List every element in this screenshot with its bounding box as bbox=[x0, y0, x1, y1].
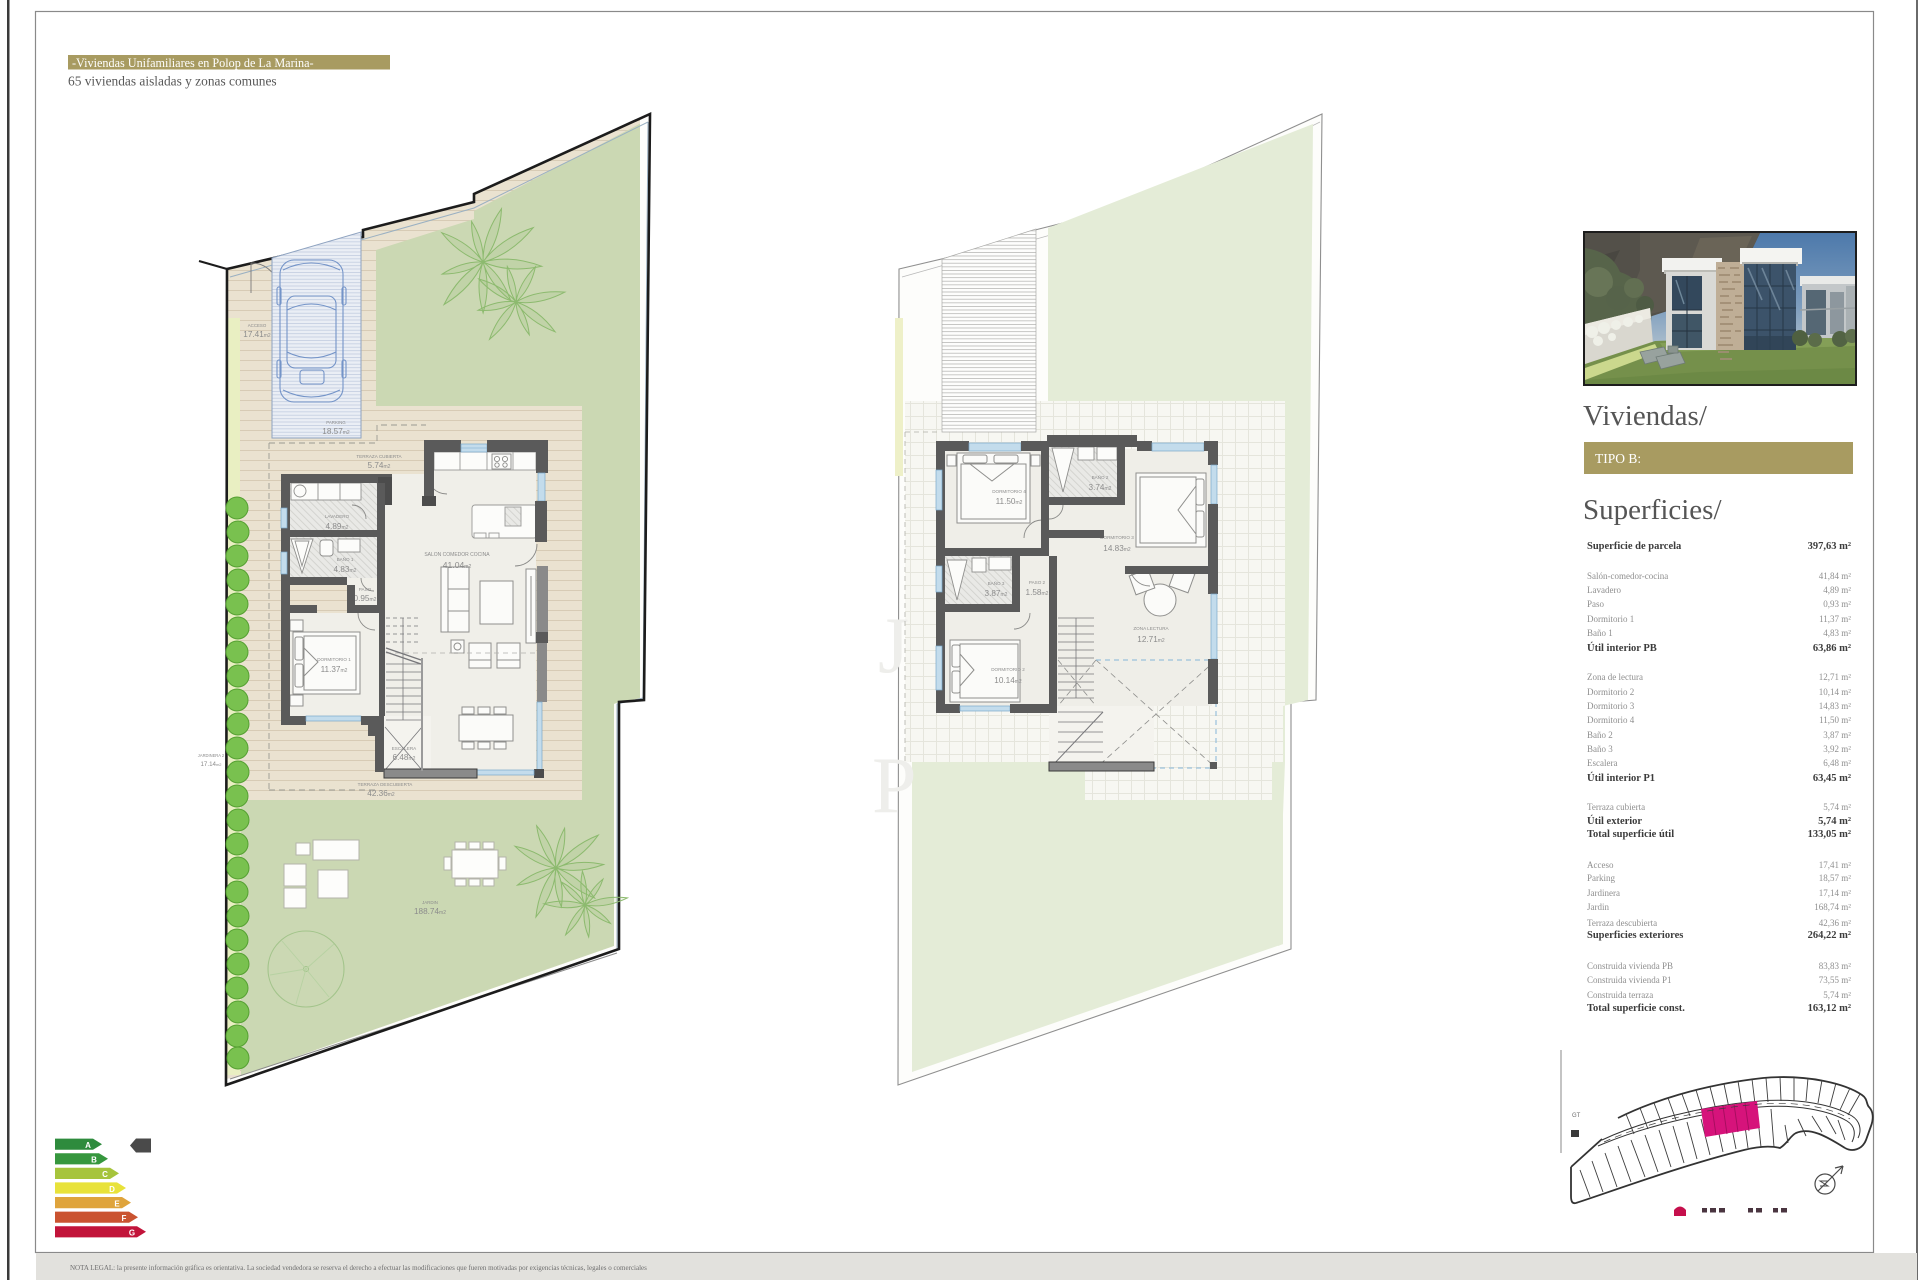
svg-text:Baño 2: Baño 2 bbox=[1587, 730, 1613, 740]
svg-text:Útil interior P1: Útil interior P1 bbox=[1587, 772, 1655, 784]
svg-text:Dormitorio 3: Dormitorio 3 bbox=[1587, 701, 1635, 711]
svg-text:41,84 m²: 41,84 m² bbox=[1819, 571, 1852, 581]
svg-text:Jardin: Jardin bbox=[1587, 902, 1609, 912]
svg-text:J: J bbox=[878, 602, 909, 690]
svg-text:PASO 2: PASO 2 bbox=[1029, 580, 1046, 585]
svg-text:Zona de lectura: Zona de lectura bbox=[1587, 672, 1643, 682]
svg-text:12,71 m²: 12,71 m² bbox=[1819, 672, 1852, 682]
svg-text:73,55 m²: 73,55 m² bbox=[1819, 975, 1852, 985]
svg-text:Superficies exteriores: Superficies exteriores bbox=[1587, 930, 1683, 941]
svg-text:17,14 m²: 17,14 m² bbox=[1819, 888, 1852, 898]
svg-text:Total superficie útil: Total superficie útil bbox=[1587, 829, 1674, 840]
svg-text:BAÑO 3: BAÑO 3 bbox=[988, 580, 1005, 586]
svg-text:11,37 m²: 11,37 m² bbox=[1819, 614, 1851, 624]
svg-text:Construida vivienda P1: Construida vivienda P1 bbox=[1587, 975, 1672, 985]
svg-text:83,83 m²: 83,83 m² bbox=[1819, 961, 1852, 971]
svg-text:63,86 m²: 63,86 m² bbox=[1813, 643, 1851, 654]
svg-text:4,89 m²: 4,89 m² bbox=[1823, 585, 1851, 595]
svg-text:3,92 m²: 3,92 m² bbox=[1823, 744, 1851, 754]
svg-text:5,74 m²: 5,74 m² bbox=[1818, 816, 1851, 827]
svg-text:264,22 m²: 264,22 m² bbox=[1808, 930, 1851, 941]
svg-text:C: C bbox=[102, 1170, 108, 1179]
svg-text:Dormitorio 2: Dormitorio 2 bbox=[1587, 687, 1634, 697]
svg-text:DORMITORIO 3: DORMITORIO 3 bbox=[1100, 535, 1134, 540]
svg-text:Dormitorio 1: Dormitorio 1 bbox=[1587, 614, 1634, 624]
svg-text:Total superficie const.: Total superficie const. bbox=[1587, 1003, 1685, 1014]
svg-text:DORMITORIO 2: DORMITORIO 2 bbox=[991, 667, 1025, 672]
svg-text:18,57 m²: 18,57 m² bbox=[1819, 873, 1852, 883]
svg-text:Jardinera: Jardinera bbox=[1587, 888, 1620, 898]
svg-text:Salón-comedor-cocina: Salón-comedor-cocina bbox=[1587, 571, 1668, 581]
svg-text:63,45 m²: 63,45 m² bbox=[1813, 773, 1851, 784]
svg-text:JARDINERA 2: JARDINERA 2 bbox=[198, 753, 225, 758]
svg-text:GT: GT bbox=[1572, 1113, 1581, 1119]
svg-text:10,14 m²: 10,14 m² bbox=[1819, 687, 1852, 697]
svg-text:JARDIN: JARDIN bbox=[422, 900, 438, 905]
svg-text:LAVADERO: LAVADERO bbox=[325, 514, 350, 519]
svg-text:G: G bbox=[129, 1229, 135, 1238]
svg-text:3,87 m²: 3,87 m² bbox=[1823, 730, 1851, 740]
svg-text:A: A bbox=[85, 1141, 91, 1150]
svg-text:P: P bbox=[872, 742, 917, 830]
svg-text:Escalera: Escalera bbox=[1587, 758, 1617, 768]
svg-text:14,83 m²: 14,83 m² bbox=[1819, 701, 1852, 711]
svg-text:SALON COMEDOR COCINA: SALON COMEDOR COCINA bbox=[424, 552, 490, 558]
svg-text:4,83 m²: 4,83 m² bbox=[1823, 628, 1851, 638]
svg-text:6,48 m²: 6,48 m² bbox=[1823, 758, 1851, 768]
svg-text:Terraza descubierta: Terraza descubierta bbox=[1587, 918, 1657, 928]
svg-text:0,93 m²: 0,93 m² bbox=[1823, 599, 1851, 609]
svg-text:TERRAZA DESCUBIERTA: TERRAZA DESCUBIERTA bbox=[358, 782, 414, 787]
svg-text:65 viviendas aisladas y zonas: 65 viviendas aisladas y zonas comunes bbox=[68, 74, 277, 89]
svg-text:BAÑO 2: BAÑO 2 bbox=[1092, 474, 1109, 480]
svg-text:Útil interior PB: Útil interior PB bbox=[1587, 642, 1657, 654]
svg-text:Baño 1: Baño 1 bbox=[1587, 628, 1613, 638]
svg-text:PARKING: PARKING bbox=[326, 420, 346, 425]
svg-text:Superficies/: Superficies/ bbox=[1583, 494, 1722, 526]
svg-text:11,50 m²: 11,50 m² bbox=[1819, 715, 1851, 725]
svg-text:F: F bbox=[122, 1214, 127, 1223]
svg-text:ACCESO: ACCESO bbox=[248, 323, 267, 328]
svg-text:D: D bbox=[109, 1185, 115, 1194]
svg-text:133,05 m²: 133,05 m² bbox=[1808, 829, 1851, 840]
svg-text:NOTA LEGAL: la presente inform: NOTA LEGAL: la presente información gráf… bbox=[70, 1264, 647, 1272]
svg-text:17,41 m²: 17,41 m² bbox=[1819, 860, 1852, 870]
svg-text:-Viviendas Unifamiliares en Po: -Viviendas Unifamiliares en Polop de La … bbox=[72, 56, 314, 70]
svg-text:Baño 3: Baño 3 bbox=[1587, 744, 1613, 754]
svg-text:168,74 m²: 168,74 m² bbox=[1814, 902, 1851, 912]
svg-text:B: B bbox=[91, 1156, 97, 1165]
svg-text:17.14m2: 17.14m2 bbox=[200, 761, 222, 768]
svg-text:Viviendas/: Viviendas/ bbox=[1583, 400, 1708, 432]
svg-text:Parking: Parking bbox=[1587, 873, 1615, 883]
svg-text:DORMITORIO 4: DORMITORIO 4 bbox=[992, 489, 1026, 494]
svg-text:DORMITORIO 1: DORMITORIO 1 bbox=[317, 657, 351, 662]
svg-text:163,12 m²: 163,12 m² bbox=[1808, 1003, 1851, 1014]
svg-text:Construida terraza: Construida terraza bbox=[1587, 990, 1653, 1000]
svg-text:Útil exterior: Útil exterior bbox=[1587, 815, 1642, 827]
svg-text:BAÑO 1: BAÑO 1 bbox=[337, 556, 354, 562]
svg-text:Lavadero: Lavadero bbox=[1587, 585, 1621, 595]
svg-text:42,36 m²: 42,36 m² bbox=[1819, 918, 1852, 928]
svg-text:Dormitorio 4: Dormitorio 4 bbox=[1587, 715, 1635, 725]
svg-text:397,63 m²: 397,63 m² bbox=[1808, 541, 1851, 552]
svg-text:TIPO B:: TIPO B: bbox=[1595, 451, 1641, 466]
svg-text:TERRAZA CUBIERTA: TERRAZA CUBIERTA bbox=[356, 454, 402, 459]
svg-text:Construida vivienda PB: Construida vivienda PB bbox=[1587, 961, 1673, 971]
svg-text:ESCALERA: ESCALERA bbox=[392, 746, 417, 751]
svg-text:Paso: Paso bbox=[1587, 599, 1605, 609]
svg-text:Terraza cubierta: Terraza cubierta bbox=[1587, 802, 1645, 812]
svg-text:5,74 m²: 5,74 m² bbox=[1823, 990, 1851, 1000]
svg-text:E: E bbox=[114, 1199, 120, 1208]
svg-text:ZONA LECTURA: ZONA LECTURA bbox=[1133, 626, 1169, 631]
svg-text:Superficie de parcela: Superficie de parcela bbox=[1587, 541, 1682, 552]
svg-text:Acceso: Acceso bbox=[1587, 860, 1614, 870]
svg-text:5,74 m²: 5,74 m² bbox=[1823, 802, 1851, 812]
